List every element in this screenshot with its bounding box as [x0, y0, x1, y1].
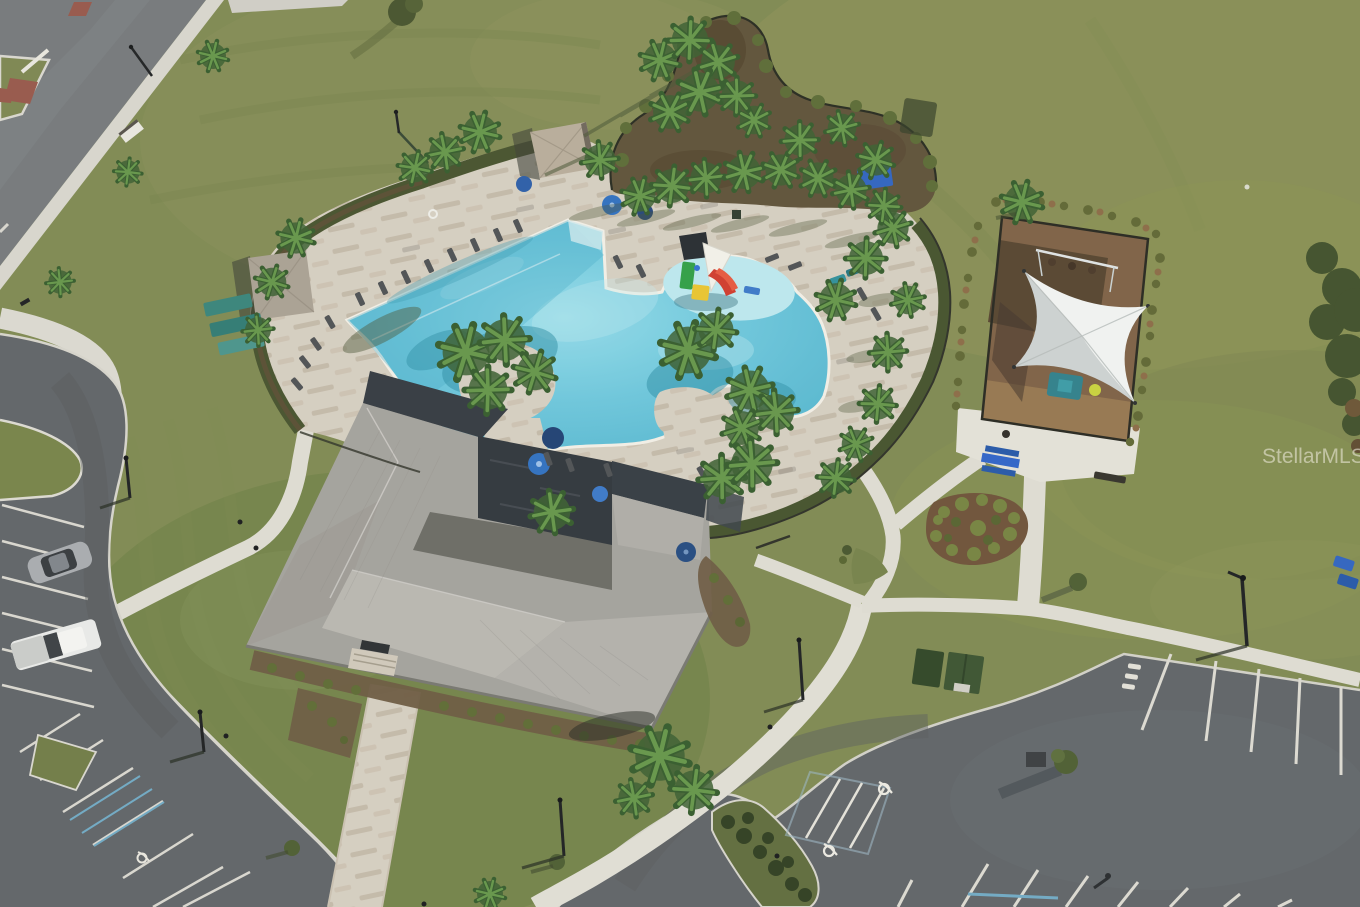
- svg-text:StellarMLS: StellarMLS: [1262, 445, 1360, 468]
